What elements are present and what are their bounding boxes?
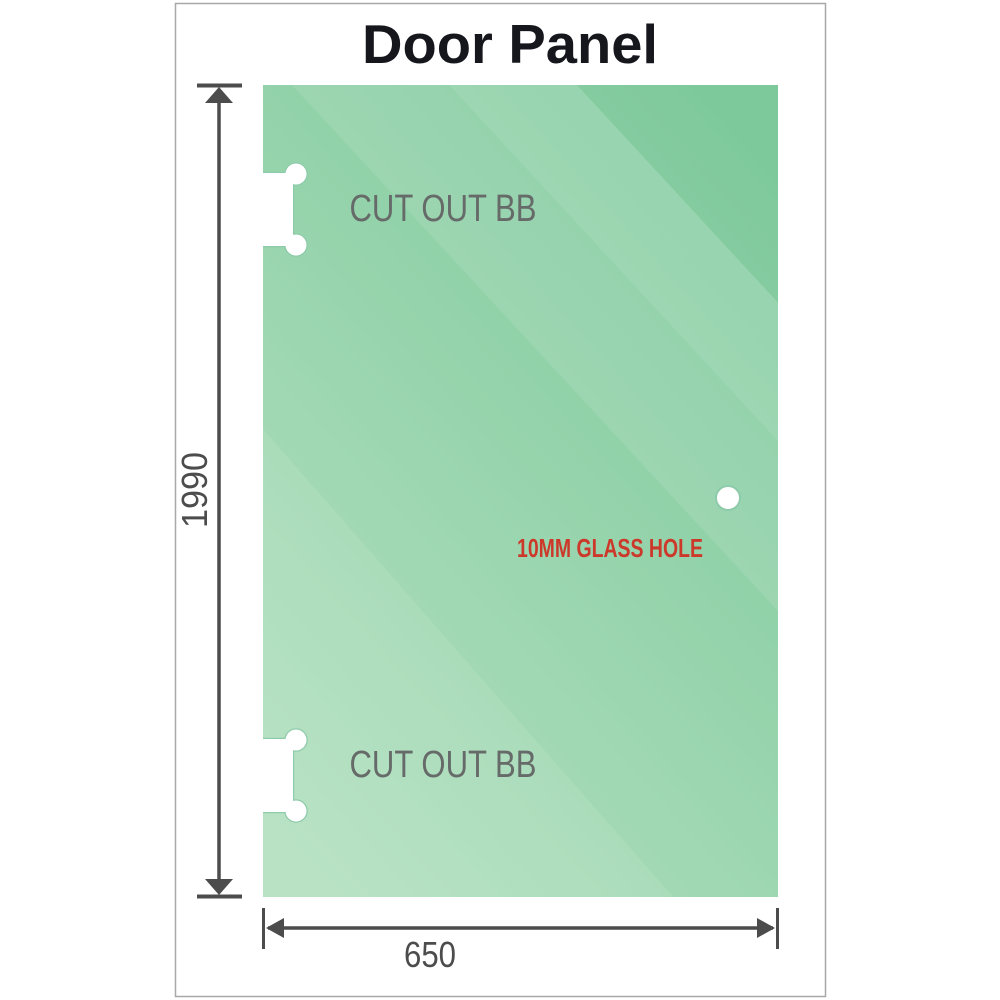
cutout-top-label: CUT OUT BB (350, 188, 537, 230)
width-dimension-label: 650 (404, 934, 456, 975)
height-dimension-label: 1990 (174, 452, 215, 528)
glass-hole (716, 486, 740, 510)
page-title: Door Panel (362, 13, 658, 75)
cutout-bottom-label: CUT OUT BB (350, 744, 537, 786)
door-panel-diagram: Door Panel CUT OUT BB CUT OUT BB 10M (0, 0, 1000, 1000)
glass-hole-label: 10MM GLASS HOLE (517, 533, 703, 563)
